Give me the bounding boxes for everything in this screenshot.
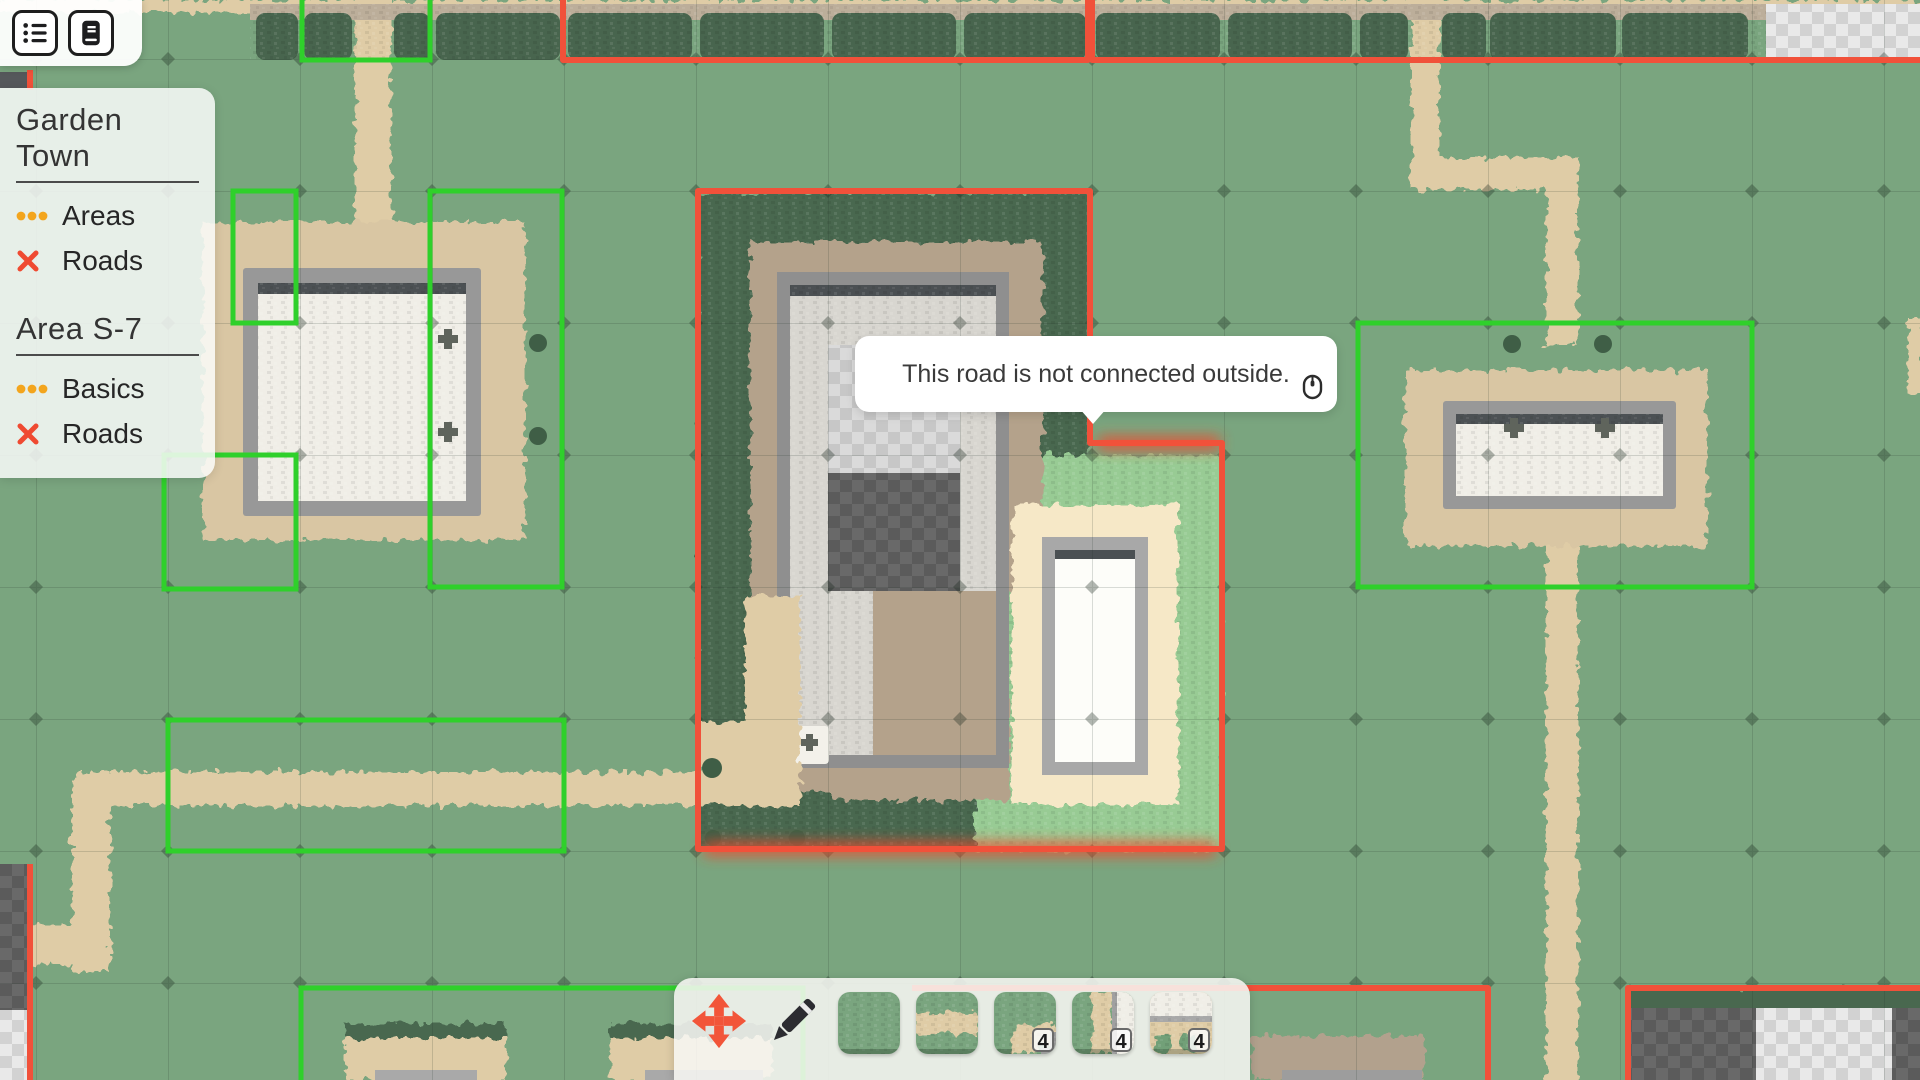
legend-panel: Garden Town Areas Roads Area S-7: [0, 88, 215, 478]
pencil-tool-button[interactable]: [764, 992, 822, 1050]
move-icon: [690, 992, 748, 1050]
legend-section-area: Area S-7 Basics Roads: [16, 311, 215, 456]
tile-count-badge: 4: [1032, 1028, 1054, 1052]
list-icon: [21, 19, 49, 47]
tile-grid: [0, 0, 1920, 1080]
game-viewport[interactable]: Garden Town Areas Roads Area S-7: [0, 0, 1920, 1080]
legend-item-label: Roads: [62, 245, 143, 277]
legend-item-roads[interactable]: Roads: [16, 238, 215, 283]
list-menu-button[interactable]: [12, 10, 58, 56]
legend-item-label: Roads: [62, 418, 143, 450]
legend-section-town: Garden Town Areas Roads: [16, 102, 215, 283]
dots-icon: [16, 211, 52, 221]
build-toolbar: 4 4 4: [674, 978, 1250, 1080]
warning-tooltip-text: This road is not connected outside.: [855, 336, 1337, 412]
town-title: Garden Town: [16, 102, 199, 183]
tile-road-plaza-edge[interactable]: 4: [1072, 992, 1134, 1054]
tile-plaza-road-stub[interactable]: 4: [1150, 992, 1212, 1054]
mouse-icon: [1302, 374, 1323, 405]
map-canvas[interactable]: [0, 0, 1920, 1080]
cross-icon: [16, 422, 52, 446]
journal-icon: [77, 19, 105, 47]
dots-icon: [16, 384, 52, 394]
journal-button[interactable]: [68, 10, 114, 56]
tile-road-straight[interactable]: [916, 992, 978, 1054]
tile-count-badge: 4: [1110, 1028, 1132, 1052]
legend-item-areas[interactable]: Areas: [16, 193, 215, 238]
legend-item-label: Areas: [62, 200, 135, 232]
move-tool-button[interactable]: [690, 992, 748, 1050]
warning-tooltip: This road is not connected outside.: [855, 336, 1337, 412]
area-title: Area S-7: [16, 311, 199, 356]
legend-item-basics[interactable]: Basics: [16, 366, 215, 411]
pencil-icon: [764, 992, 822, 1050]
tile-grass[interactable]: [838, 992, 900, 1054]
tile-road-corner[interactable]: 4: [994, 992, 1056, 1054]
legend-item-label: Basics: [62, 373, 144, 405]
menu-button-card: [0, 0, 142, 66]
legend-item-roads-area[interactable]: Roads: [16, 411, 215, 456]
cross-icon: [16, 249, 52, 273]
tile-count-badge: 4: [1188, 1028, 1210, 1052]
